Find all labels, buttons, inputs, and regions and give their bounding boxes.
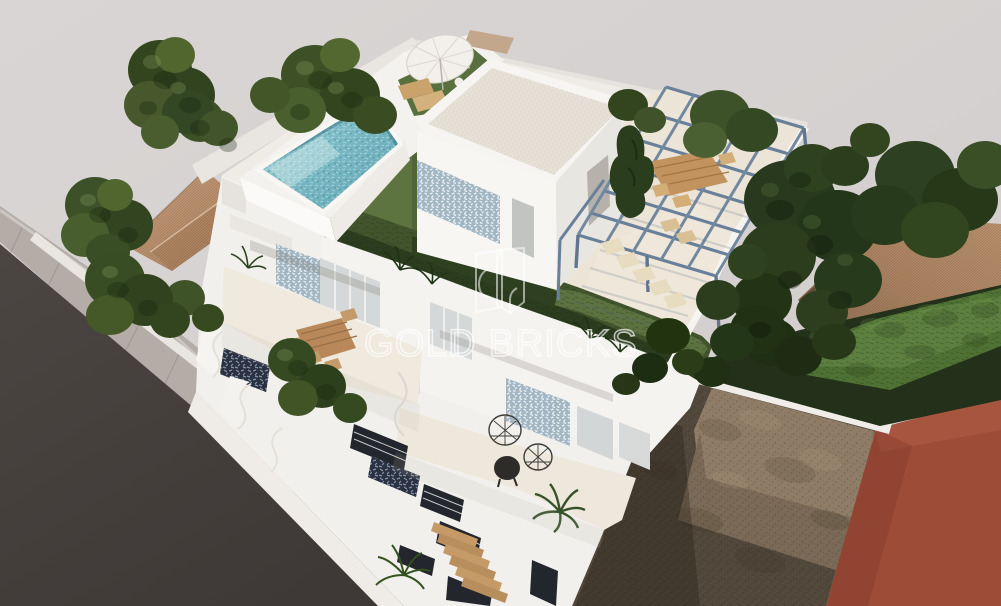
- svg-text:GOLD BRICKS: GOLD BRICKS: [364, 323, 638, 365]
